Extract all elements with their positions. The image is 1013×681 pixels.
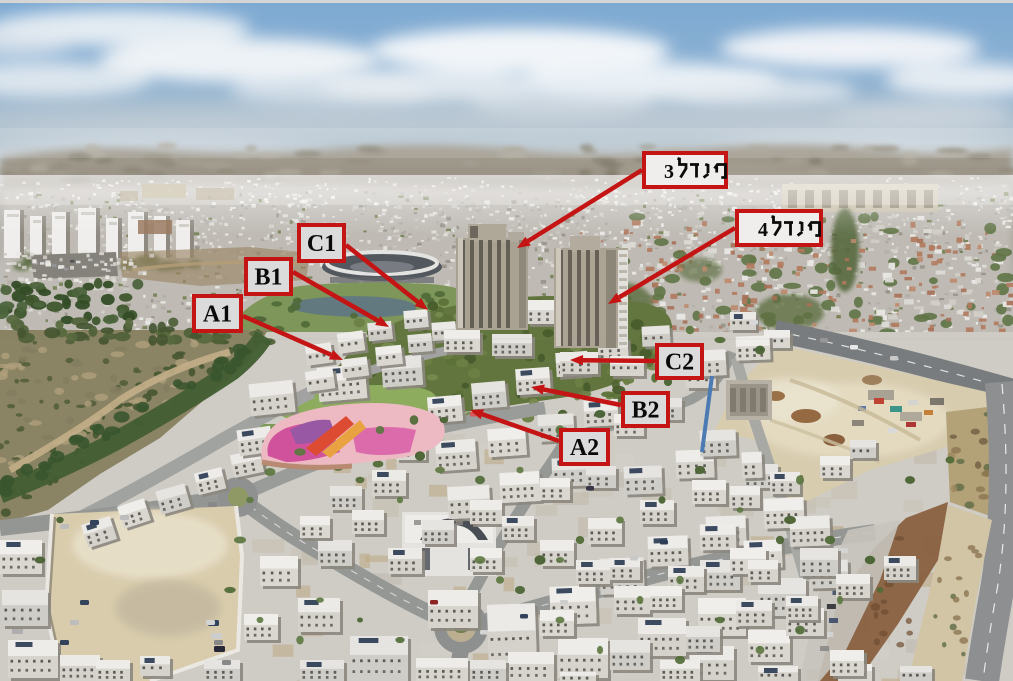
svg-text:C1: C1 (307, 231, 336, 257)
svg-text:3: 3 (664, 161, 674, 183)
svg-text:4: 4 (758, 219, 768, 241)
svg-text:B1: B1 (254, 265, 282, 291)
svg-text:C2: C2 (665, 350, 694, 376)
svg-text:A1: A1 (203, 302, 232, 328)
svg-text:B2: B2 (631, 398, 659, 424)
svg-text:A2: A2 (570, 435, 599, 461)
